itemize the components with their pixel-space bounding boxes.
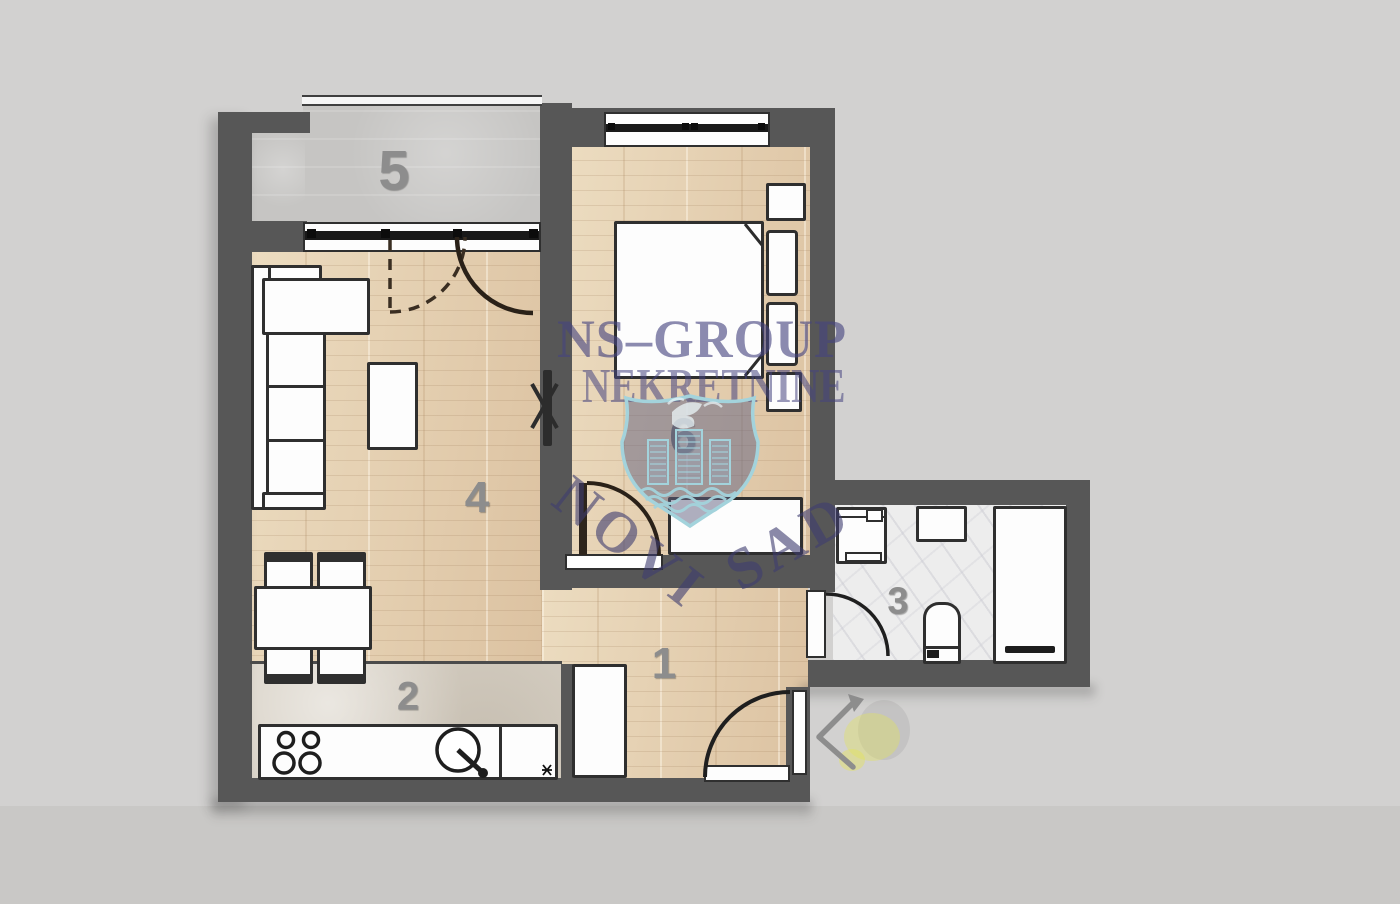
window-frame-bar [305,231,539,240]
dining-chair [317,645,366,684]
nightstand [766,183,806,221]
hall-wardrobe [572,664,627,778]
dining-chair [264,645,313,684]
window-hinge [307,229,316,238]
toilet-bowl [923,602,961,652]
terrace-window-door [303,222,541,252]
coffee-table [367,362,418,450]
wall-left [218,112,252,802]
terrace-floor-left [250,133,305,224]
kitchen-counter [258,724,558,780]
entrance-smudge [858,700,910,760]
window-hinge [691,123,698,130]
bathroom-door-leaf [806,590,826,658]
room-label-bedroom: 6 [669,407,697,465]
window-hinge [453,229,462,238]
room-label-bathroom: 3 [887,581,908,624]
window-hinge [758,123,765,130]
plan-shadow-bath [800,685,1095,701]
chair-backrest [319,674,364,682]
wall-bathroom-bottom [808,660,1090,687]
background-band [0,806,1400,904]
sofa-cushion [266,439,326,495]
wall-bathroom-right [1066,480,1090,687]
counter-divider [499,727,502,777]
room-label-kitchen: 2 [397,675,419,720]
toilet-flush [927,650,939,658]
room-label-hall: 1 [652,639,676,689]
room-label-terrace: 5 [378,138,409,203]
chair-backrest [319,554,364,562]
dining-table [254,586,372,650]
sofa-cushion [266,332,326,388]
entrance-highlight [839,749,865,771]
chair-backrest [266,674,311,682]
window-hinge [529,229,538,238]
wall-living-top [248,221,307,252]
entry-door-jamb [792,690,807,775]
entrance-highlight [844,713,900,761]
toilet-tank [923,646,961,664]
sofa-cushion [266,385,326,442]
basin-base [845,552,882,562]
window-hinge [381,229,390,238]
plan-shadow-bottom [212,800,812,820]
sofa-bottom-armrest [262,492,326,510]
entrance-arrow-icon [819,694,864,767]
room-label-living: 4 [465,473,489,523]
basin-tap [866,509,883,522]
bathtub [993,506,1067,664]
window-hinge [608,123,615,130]
terrace-floor [303,106,541,224]
floor-plan-image: 5 6 4 1 2 3 NS–GROUP NEKRETNINE NOVI SAD [0,0,1400,904]
sofa-chaise-cushion [262,278,370,335]
terrace-railing [302,95,542,106]
watermark-subtitle: NEKRETNINE [582,357,822,414]
bedroom-window [604,112,770,147]
wall-terrace-top [218,112,310,133]
bathtub-drain-bar [1005,646,1055,653]
window-hinge [682,123,689,130]
entrance-door-leaf [704,765,790,782]
wall-bathroom-top [833,480,1090,505]
bathroom-cabinet-sink [916,506,967,542]
pillow [766,230,798,296]
tv-panel [543,370,552,446]
chair-backrest [266,554,311,562]
